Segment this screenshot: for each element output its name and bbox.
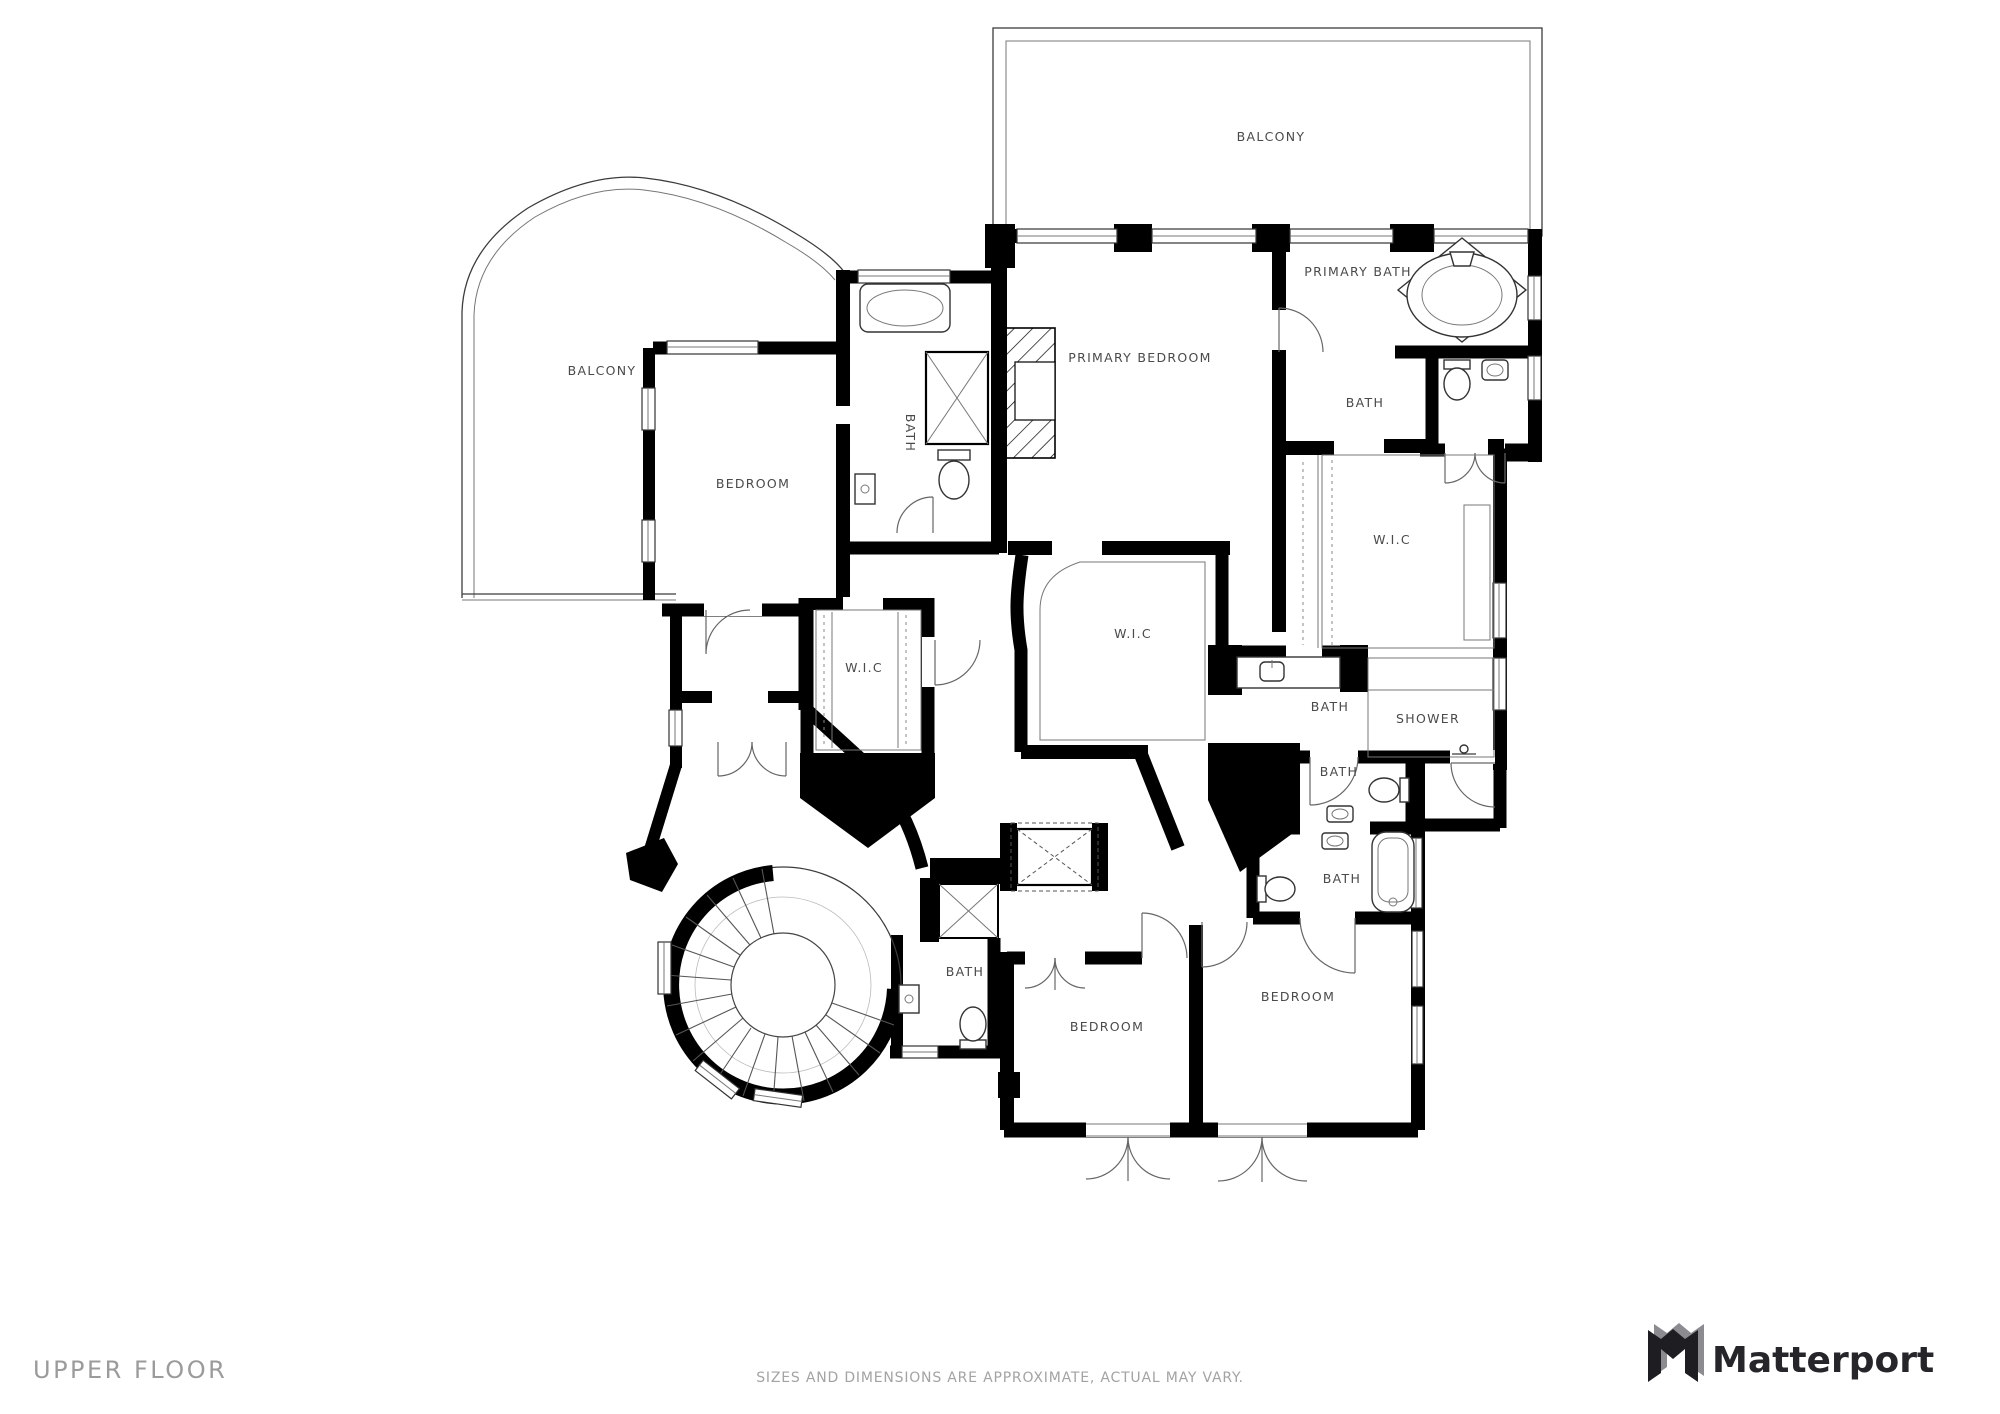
window [1412, 931, 1423, 987]
room-label-wic-right: W.I.C [1373, 532, 1411, 547]
toilet-icon [1257, 876, 1295, 902]
sink-icon [1322, 833, 1348, 849]
room-label-bath-mid: BATH [1311, 699, 1349, 714]
window [642, 388, 655, 430]
room-label-bath-left: BATH [903, 414, 918, 452]
floor-plan-page: BALCONY PRIMARY BATH PRIMARY BEDROOM BAT… [0, 0, 2000, 1414]
shower-icon [939, 884, 998, 938]
window [1412, 1006, 1423, 1064]
toilet-icon [1444, 360, 1470, 400]
window [1528, 356, 1541, 400]
window [667, 341, 758, 354]
room-label-bedroom-bottom-right: BEDROOM [1261, 989, 1335, 1004]
room-label-bedroom-left: BEDROOM [716, 476, 790, 491]
window [669, 710, 682, 746]
window [902, 1046, 938, 1058]
window [1528, 276, 1541, 320]
sink-icon [1482, 360, 1508, 380]
fireplace-icon [997, 328, 1055, 458]
corner-tub-icon [1398, 238, 1526, 342]
room-label-bedroom-bottom-center: BEDROOM [1070, 1019, 1144, 1034]
room-label-balcony-top: BALCONY [1237, 129, 1306, 144]
window [1017, 229, 1117, 243]
window [642, 520, 655, 562]
room-label-balcony-left: BALCONY [568, 363, 637, 378]
matterport-logo: Matterport [1648, 1323, 1934, 1382]
window [658, 942, 671, 994]
matterport-logo-icon [1648, 1323, 1704, 1382]
room-label-primary-bedroom: PRIMARY BEDROOM [1068, 350, 1212, 365]
elevator-icon [1011, 823, 1098, 891]
vanity-sink-icon [1237, 657, 1340, 688]
window [1152, 229, 1256, 243]
window [1493, 658, 1506, 710]
toilet-icon [1369, 778, 1409, 802]
bathtub-icon [860, 284, 950, 332]
room-label-bath-small: BATH [1320, 764, 1358, 779]
floor-plan-canvas: BALCONY PRIMARY BATH PRIMARY BEDROOM BAT… [0, 0, 2000, 1414]
room-label-shower: SHOWER [1396, 711, 1460, 726]
window [1493, 583, 1506, 638]
room-label-bath-bottom: BATH [946, 964, 984, 979]
room-label-wic-left: W.I.C [845, 660, 883, 675]
window [1434, 229, 1528, 243]
window [1290, 229, 1393, 243]
toilet-icon [960, 1007, 986, 1049]
room-label-bath-lower: BATH [1323, 871, 1361, 886]
brand-text: Matterport [1712, 1340, 1934, 1381]
disclaimer-text: SIZES AND DIMENSIONS ARE APPROXIMATE, AC… [756, 1370, 1243, 1386]
room-label-wic-center: W.I.C [1114, 626, 1152, 641]
floor-name-label: UPPER FLOOR [33, 1356, 227, 1384]
toilet-icon [938, 450, 970, 499]
sink-icon [855, 474, 875, 504]
room-label-bath-primary-toilet: BATH [1346, 395, 1384, 410]
wall-mass-center [1208, 743, 1300, 872]
window [858, 270, 950, 283]
room-label-primary-bath: PRIMARY BATH [1304, 264, 1412, 279]
shower-icon [926, 352, 988, 444]
sink-icon [1327, 806, 1353, 822]
bathtub-icon [1372, 832, 1414, 912]
sink-icon [899, 985, 919, 1013]
